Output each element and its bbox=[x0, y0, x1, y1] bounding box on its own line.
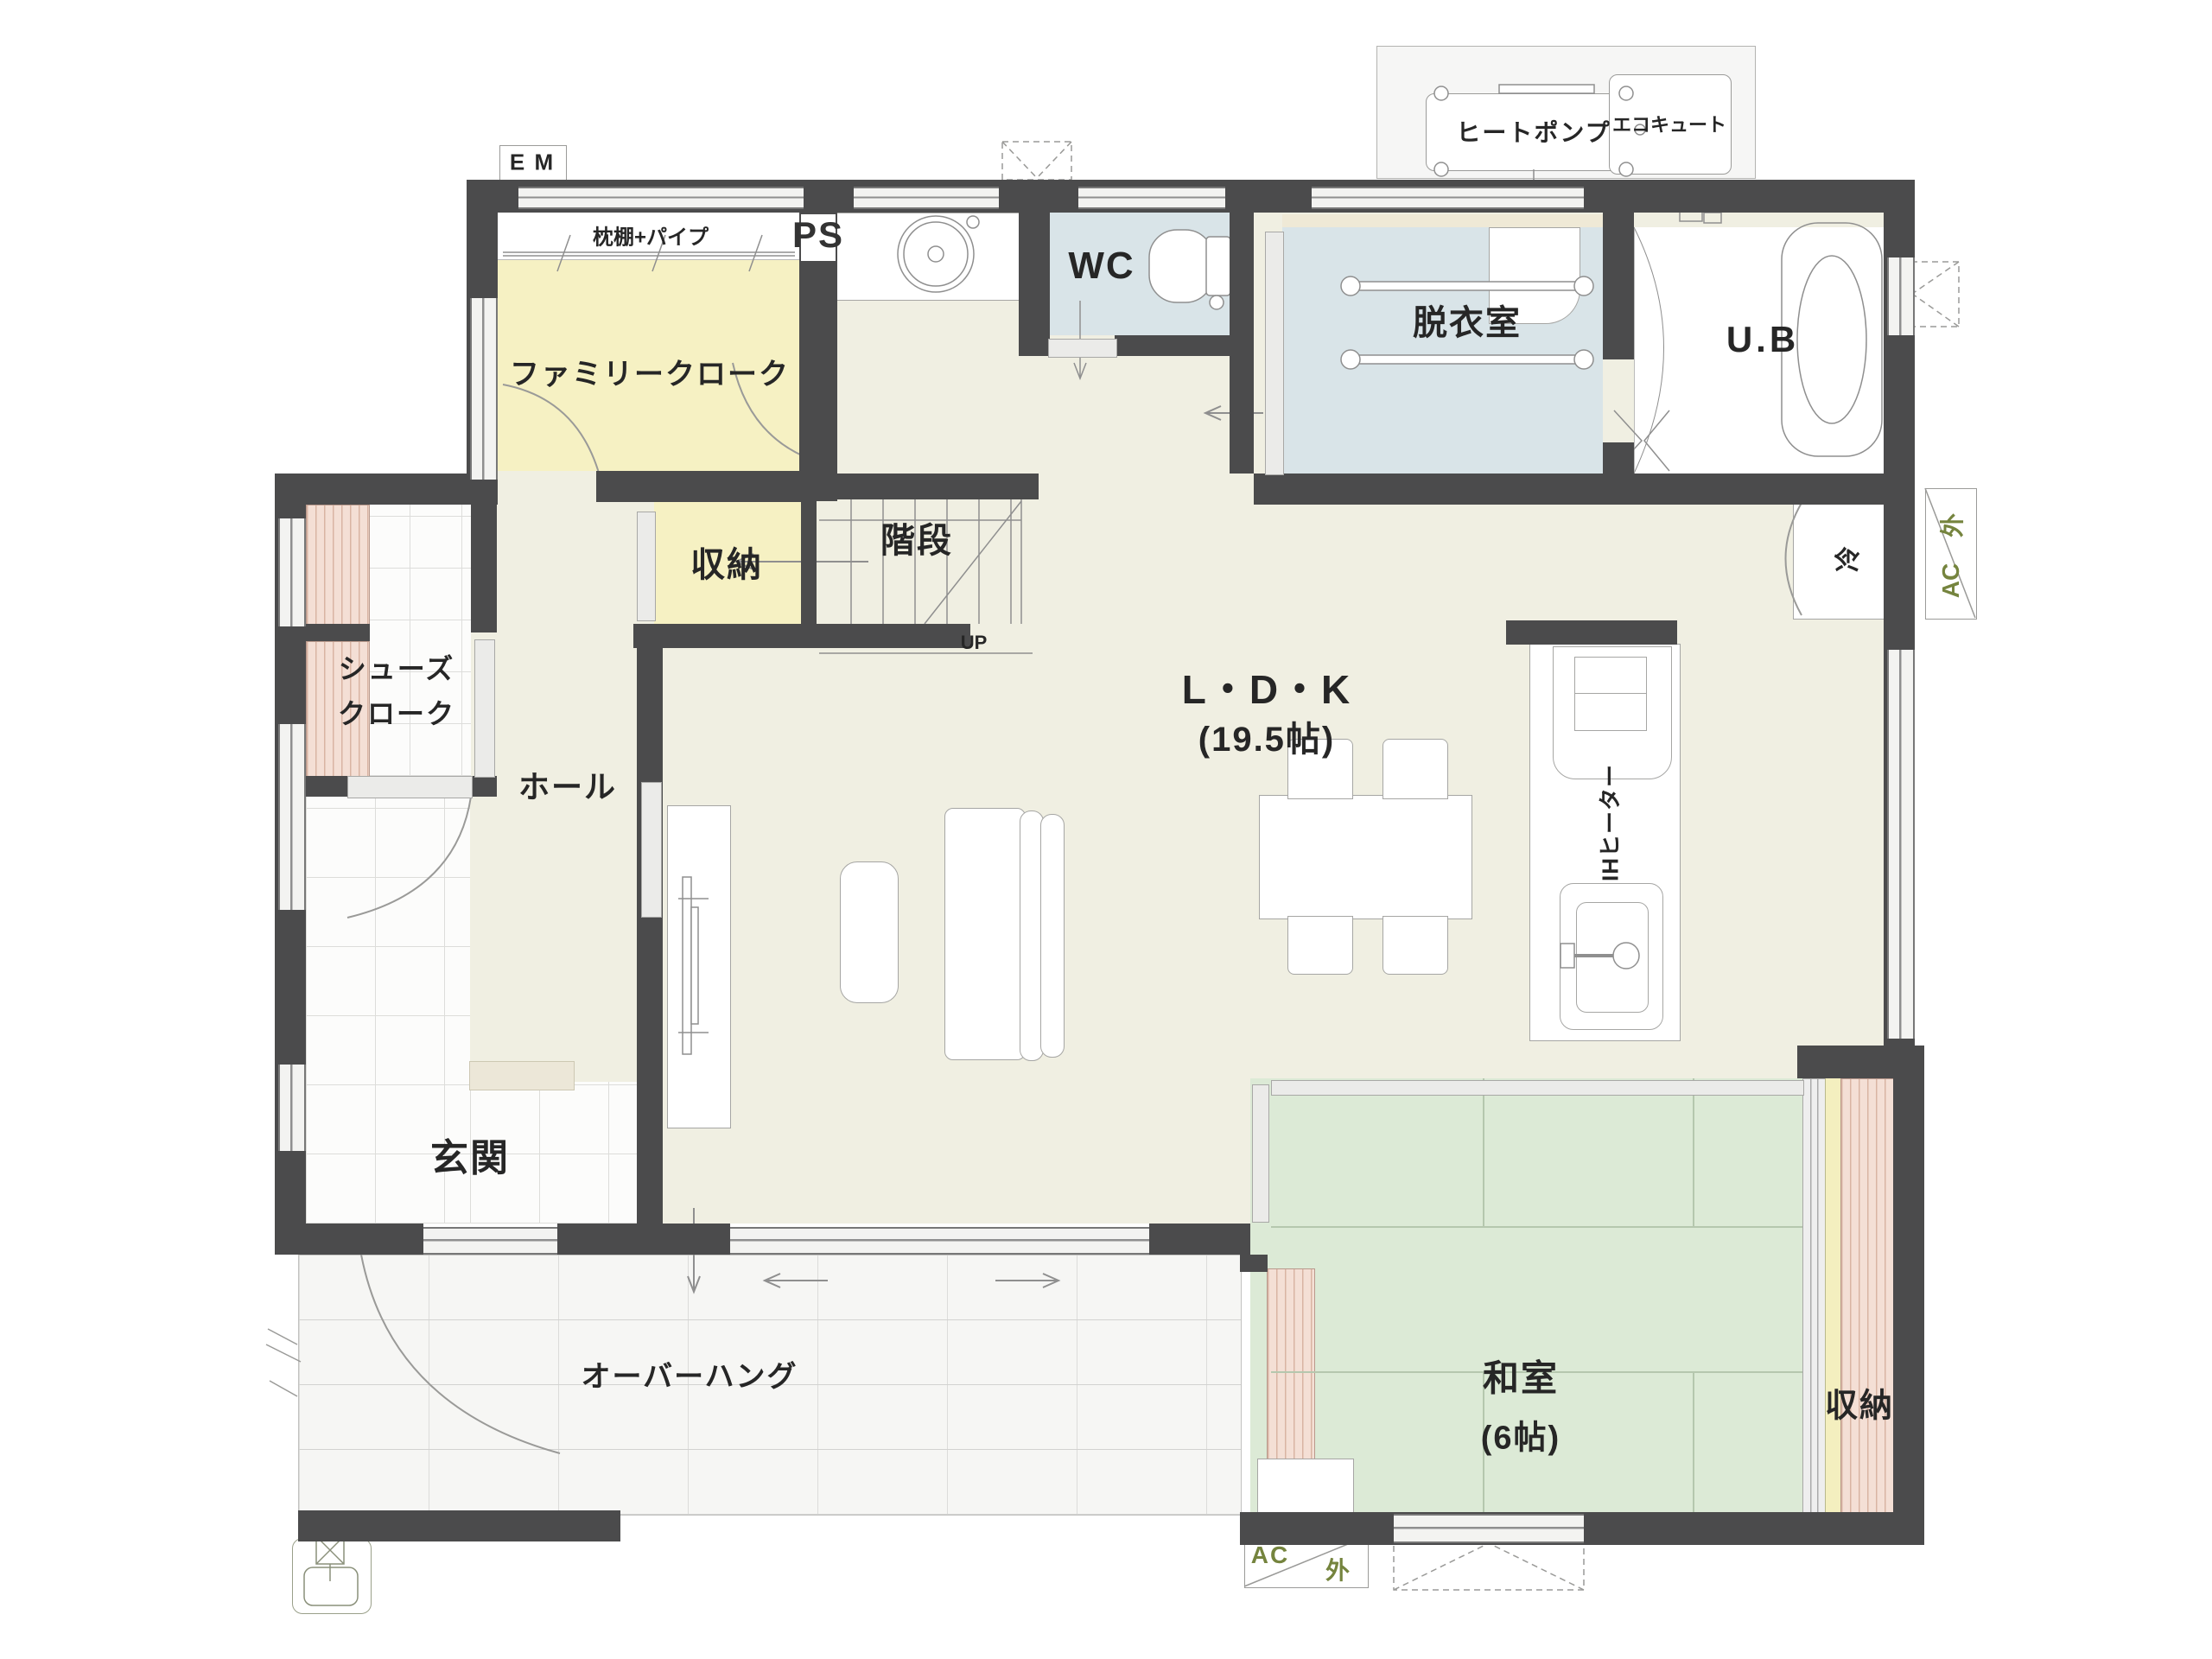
wall-segment bbox=[275, 1224, 423, 1255]
stove-grate-1 bbox=[1574, 657, 1647, 695]
sliding-door-track bbox=[1252, 1084, 1269, 1223]
washitsu-size-label: (6帖) bbox=[1481, 1411, 1560, 1459]
ac-bottom-ac-label: AC bbox=[1251, 1541, 1289, 1569]
ottoman bbox=[840, 861, 899, 1003]
ldk-label: L・D・K bbox=[1182, 658, 1352, 715]
ac-box-right bbox=[1925, 488, 1977, 620]
window bbox=[1394, 1514, 1584, 1543]
dressing-window-band bbox=[1282, 214, 1603, 227]
window bbox=[278, 1065, 306, 1151]
wall-segment bbox=[1603, 442, 1634, 474]
wall-segment bbox=[306, 776, 347, 797]
ac-bottom-outside-label: 外 bbox=[1325, 1552, 1351, 1586]
wall-segment bbox=[301, 624, 370, 641]
pillow-shelf-label: 枕棚+パイプ bbox=[593, 220, 709, 251]
wall-segment bbox=[637, 624, 663, 1224]
wall-segment bbox=[1019, 180, 1050, 356]
wall-segment bbox=[471, 505, 497, 632]
floorplan-canvas: E M 枕棚+パイプ ファミリークローク PS WC 脱衣室 U.B ヒートポン… bbox=[0, 0, 2212, 1659]
window bbox=[1887, 650, 1915, 1039]
sliding-door-track bbox=[1265, 232, 1284, 475]
wall-segment bbox=[1115, 335, 1230, 356]
dining-chair bbox=[1382, 739, 1448, 799]
sofa-back-2 bbox=[1040, 814, 1065, 1058]
sofa-seat bbox=[944, 808, 1026, 1060]
wall-segment bbox=[1893, 1046, 1924, 1545]
wc-label: WC bbox=[1068, 245, 1135, 288]
washbasin-counter bbox=[836, 213, 1039, 301]
wall-segment bbox=[665, 1224, 730, 1255]
window bbox=[1887, 257, 1915, 335]
wall-segment bbox=[1603, 213, 1634, 359]
wall-segment bbox=[812, 474, 1039, 499]
window bbox=[278, 518, 306, 626]
wall-segment bbox=[1771, 475, 1884, 499]
stairs-label: 階段 bbox=[880, 512, 953, 563]
window bbox=[518, 187, 804, 209]
wall-segment bbox=[275, 474, 498, 505]
sliding-door-track bbox=[1271, 1080, 1804, 1096]
wc-door-track bbox=[1048, 339, 1117, 358]
entrance-label: 玄関 bbox=[430, 1127, 510, 1182]
window bbox=[1078, 187, 1225, 209]
dining-chair bbox=[1287, 916, 1353, 975]
family-cloak-label: ファミリークローク bbox=[510, 351, 790, 393]
hall-label: ホール bbox=[518, 762, 617, 807]
bath-label: U.B bbox=[1726, 319, 1799, 360]
floor-ldk-lower bbox=[665, 1047, 1250, 1224]
closet-right-yellow-strip bbox=[1825, 1078, 1841, 1512]
wall-segment bbox=[801, 499, 817, 624]
window-sliding-glass bbox=[730, 1227, 1149, 1255]
wall-segment bbox=[1797, 1046, 1893, 1078]
kitchen-sink-basin bbox=[1576, 902, 1649, 1013]
ground-hatch bbox=[266, 1329, 301, 1396]
wall-segment bbox=[471, 776, 497, 797]
closet-right-track bbox=[1802, 1078, 1827, 1514]
window bbox=[470, 298, 498, 480]
ldk-size-label: (19.5帖) bbox=[1198, 711, 1336, 761]
sliding-door-track bbox=[641, 782, 662, 918]
wall-segment bbox=[596, 471, 812, 502]
ac-right-outside-label: 外 bbox=[1934, 513, 1968, 537]
em-label: E M bbox=[510, 149, 555, 176]
dining-table bbox=[1259, 795, 1472, 919]
room-closet-right bbox=[1840, 1078, 1901, 1514]
wall-segment bbox=[1240, 1255, 1268, 1272]
shoes-cloak-label-line2: クローク bbox=[338, 692, 455, 732]
awning-window-bath bbox=[1911, 262, 1959, 327]
wall-segment bbox=[1506, 620, 1677, 645]
tv-board bbox=[667, 805, 731, 1128]
wall-segment bbox=[298, 1510, 620, 1541]
wall-segment bbox=[1230, 180, 1254, 474]
entrance-step bbox=[469, 1061, 575, 1090]
awning-window-top bbox=[1002, 142, 1071, 180]
window bbox=[1312, 187, 1584, 209]
window bbox=[278, 724, 306, 910]
closet-mid-label: 収納 bbox=[690, 537, 763, 587]
overhang-label: オーバーハング bbox=[582, 1353, 798, 1395]
entrance-door bbox=[423, 1227, 557, 1255]
sliding-door-track bbox=[474, 639, 495, 778]
ac-right-ac-label: AC bbox=[1937, 563, 1965, 598]
shoes-cloak-label-line1: シューズ bbox=[339, 647, 454, 687]
dressing-label: 脱衣室 bbox=[1413, 295, 1522, 345]
heat-pump-label: ヒートポンプ bbox=[1456, 114, 1611, 149]
outdoor-faucet bbox=[292, 1538, 372, 1614]
wall-segment bbox=[557, 1224, 665, 1255]
sliding-door-track bbox=[637, 512, 656, 621]
sliding-door-track bbox=[347, 776, 473, 798]
wall-segment bbox=[1149, 1224, 1250, 1255]
awning-window-washitsu bbox=[1394, 1541, 1584, 1590]
dining-chair bbox=[1382, 916, 1448, 975]
closet-right-label: 収納 bbox=[1825, 1379, 1894, 1427]
ecocute-label: エコキュート bbox=[1612, 110, 1726, 137]
wall-segment bbox=[633, 624, 970, 648]
window bbox=[854, 187, 999, 209]
ps-label: PS bbox=[792, 214, 844, 256]
shoes-shelf-upper bbox=[306, 505, 370, 626]
stove-grate-2 bbox=[1574, 693, 1647, 731]
ih-heater-label: IHヒーター bbox=[1593, 764, 1625, 881]
washitsu-label: 和室 bbox=[1483, 1350, 1559, 1402]
fridge-label: 冷 bbox=[1827, 544, 1865, 572]
washitsu-step-box bbox=[1257, 1459, 1354, 1514]
up-label: UP bbox=[961, 632, 988, 654]
